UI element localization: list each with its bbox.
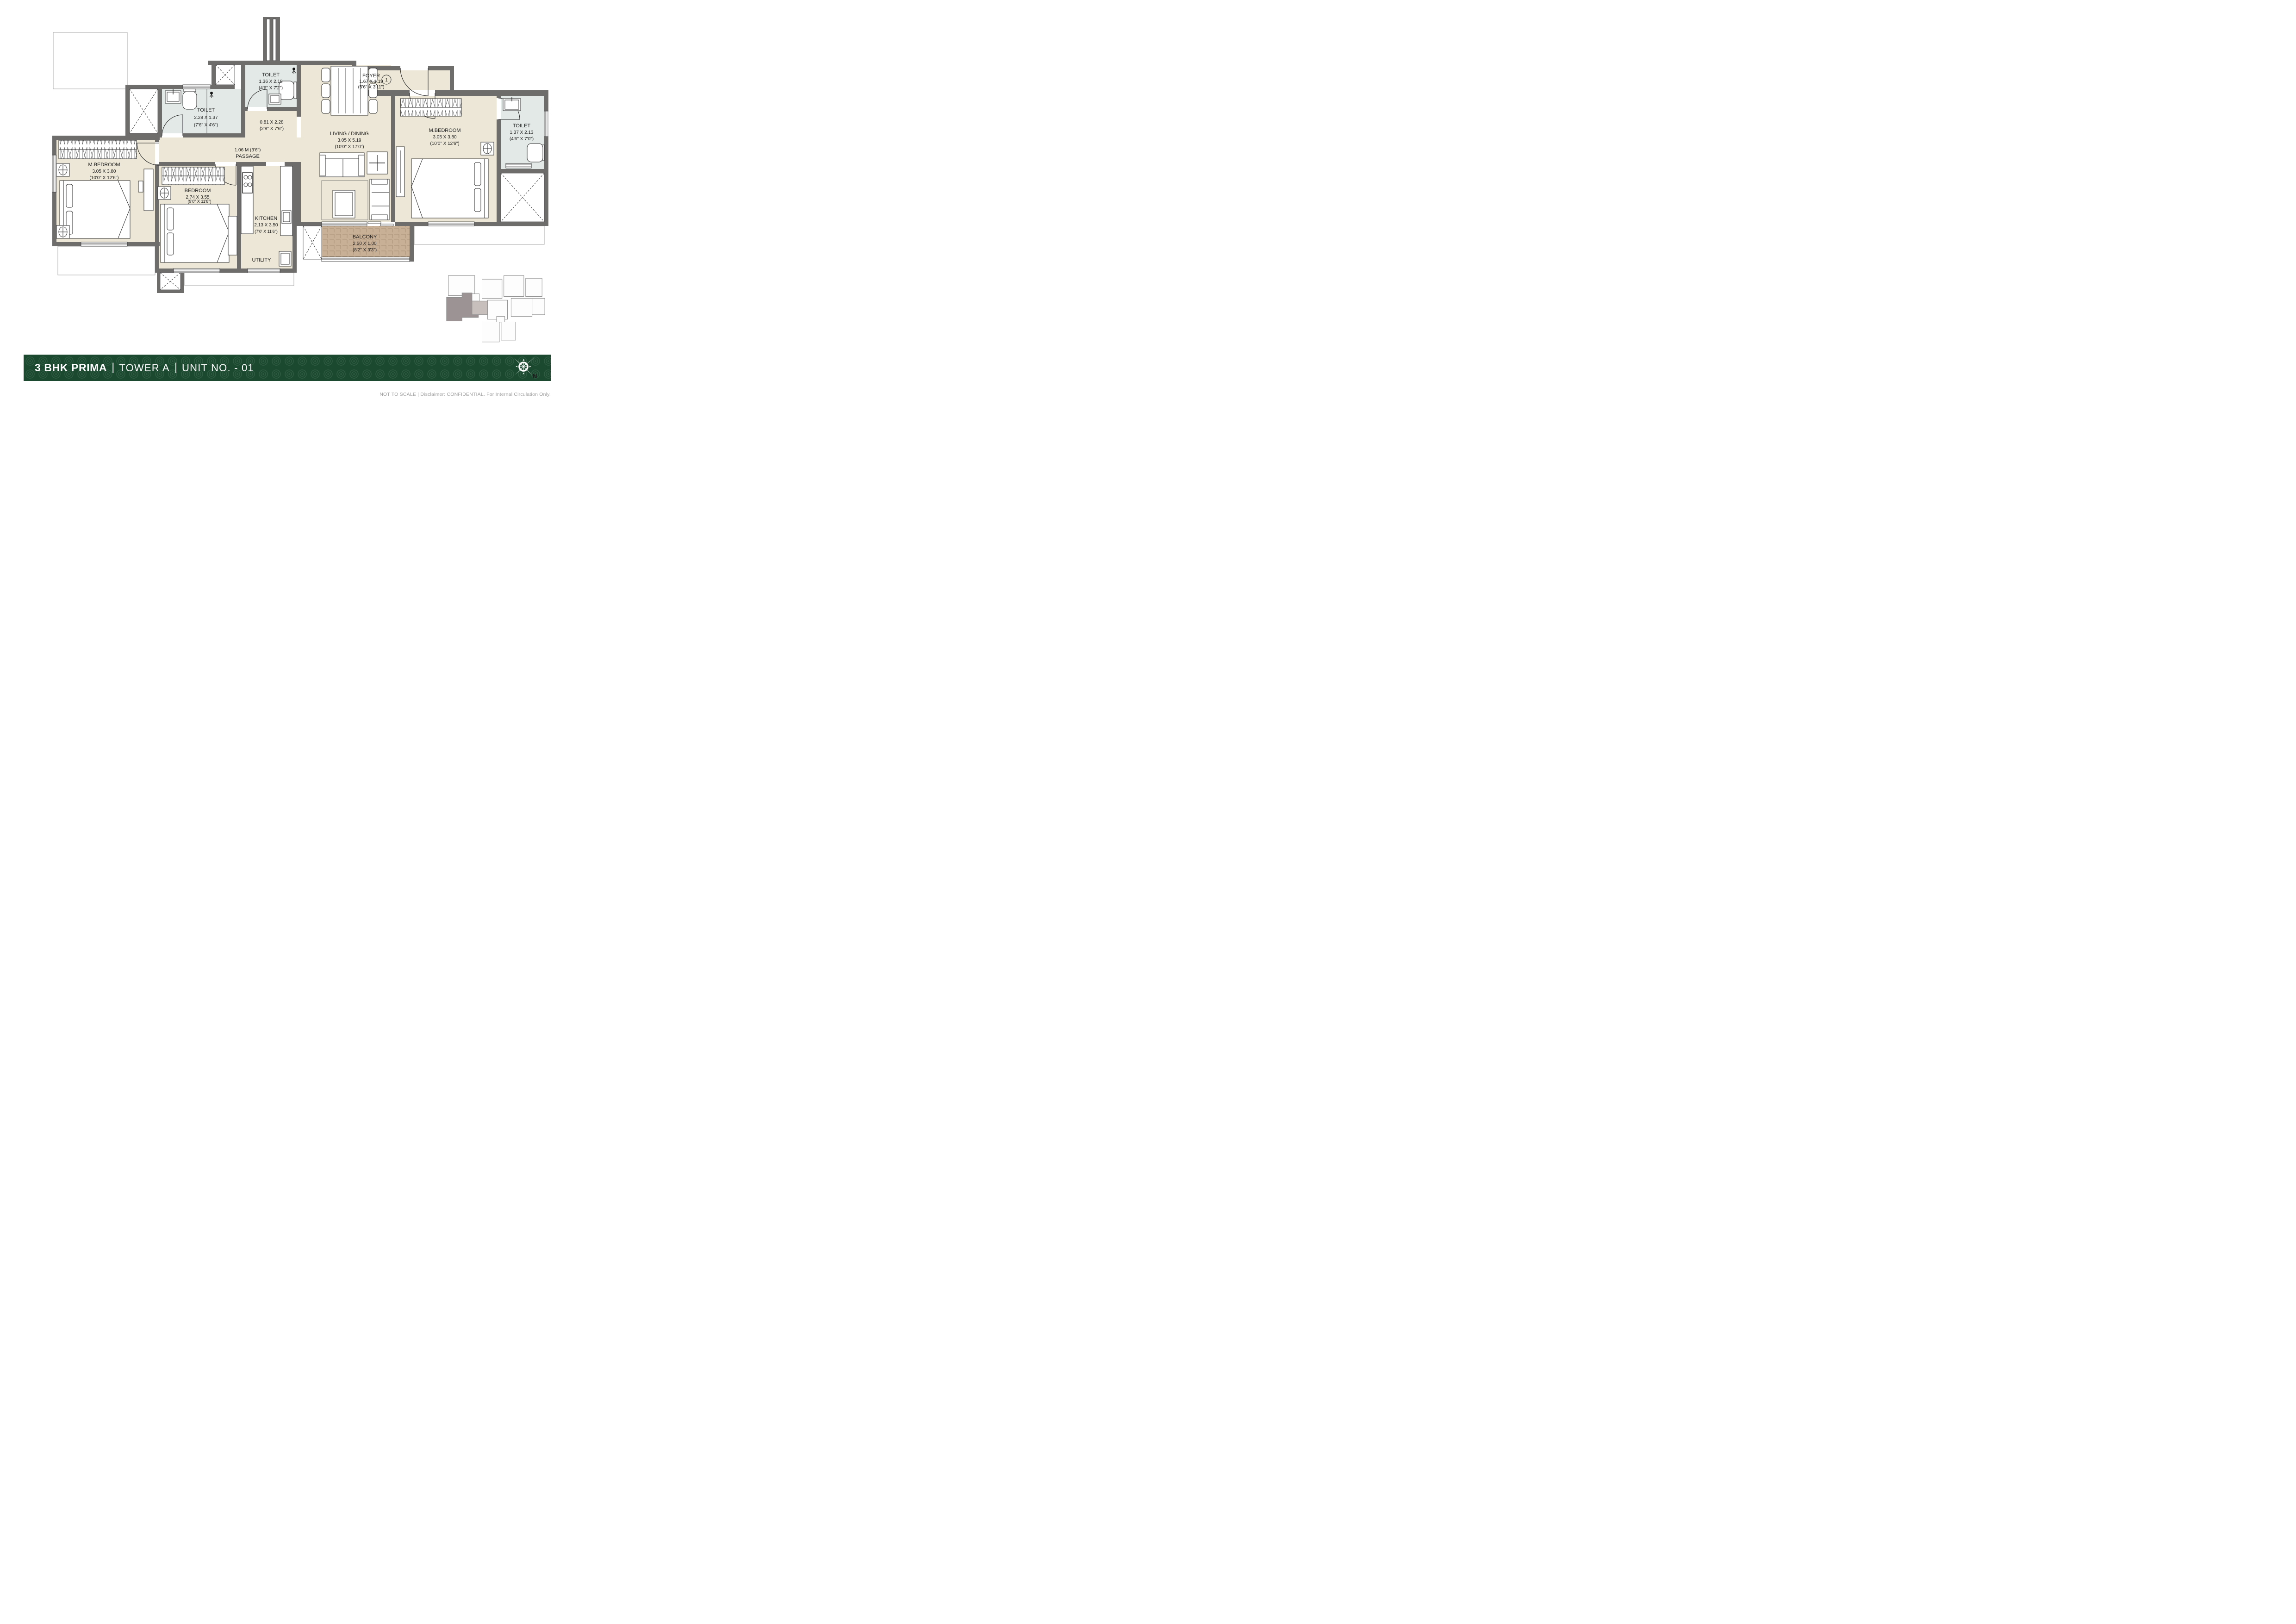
nightstand-lamp [56, 225, 69, 238]
room-label: BALCONY [353, 234, 377, 240]
room-dim-m: 2.50 X 1.00 [353, 241, 377, 246]
footer-bar: 3 BHK PRIMA | TOWER A | UNIT NO. - 01 N [24, 355, 551, 381]
sink-icon [165, 89, 181, 103]
door-number: 1 [385, 78, 388, 83]
room-toilet-right: TOILET 1.37 X 2.13 (4'6" X 7'0") [510, 123, 534, 142]
nightstand-lamp [56, 163, 69, 176]
key-plan [443, 271, 548, 346]
room-bedroom: BEDROOM 2.74 X 3.55 (9'0" X 11'8") [185, 188, 212, 204]
room-dim-m: 2.13 X 3.50 [254, 223, 278, 228]
room-dim-m: 3.05 X 5.19 [337, 138, 361, 143]
title-tower: TOWER A [119, 362, 169, 374]
bed-rbedroom [411, 159, 488, 218]
room-label: TOILET [197, 107, 215, 113]
room-balcony: BALCONY 2.50 X 1.00 (8'2" X 3'3") [353, 234, 377, 253]
floor-plan-svg: TOILET 1.36 X 2.18 (4'6" X 7'2") 0.81 X … [44, 16, 548, 294]
kitchen-sink-icon [282, 211, 291, 224]
title-unit: UNIT NO. - 01 [182, 362, 254, 374]
sofa-three-seater [370, 179, 389, 220]
title-separator: | [174, 361, 177, 374]
room-label: TOILET [513, 123, 531, 129]
room-dim-m: 3.05 X 3.80 [92, 169, 116, 174]
key-plan-highlighted-unit [447, 293, 487, 321]
title-separator: | [112, 361, 114, 374]
room-mbedroom-left: M.BEDROOM 3.05 X 3.80 (10'0" X 12'6") [88, 162, 120, 181]
sink-icon [503, 97, 521, 111]
room-label: M.BEDROOM [88, 162, 120, 168]
compass-icon: N [511, 357, 539, 379]
wc-icon [527, 144, 544, 162]
shaft-bottom-left [160, 273, 180, 290]
wardrobe-lbedroom [59, 140, 137, 159]
room-dim: 1.06 M (3'6") [235, 148, 261, 153]
balcony-railing [322, 257, 410, 262]
shaft-top [216, 65, 235, 85]
room-toilet-left: TOILET 2.28 X 1.37 (7'6" X 4'6") [194, 107, 218, 128]
disclaimer-text: NOT TO SCALE | Disclaimer: CONFIDENTIAL.… [380, 392, 551, 397]
window-lbedroom-south [81, 242, 127, 246]
window-rtoilet-east [544, 111, 548, 137]
coffee-table [333, 190, 355, 218]
room-passage: 1.06 M (3'6") PASSAGE [235, 148, 261, 159]
window-living-balcony [322, 222, 367, 226]
window-rbedroom-south [428, 222, 474, 226]
room-dim-ft: (4'6" X 7'0") [510, 137, 534, 142]
room-label: LIVING / DINING [330, 131, 369, 137]
floor-plan: TOILET 1.36 X 2.18 (4'6" X 7'2") 0.81 X … [44, 16, 548, 294]
room-dim-m: 3.05 X 3.80 [433, 135, 457, 140]
floor-passage [159, 137, 301, 162]
window-ltoilet-north [183, 85, 211, 89]
shaft-balcony-left [303, 226, 322, 259]
room-label: M.BEDROOM [429, 128, 460, 133]
room-label: UTILITY [252, 257, 272, 263]
room-dim-ft: (8'2" X 3'3") [353, 248, 377, 253]
room-dim-ft: (9'0" X 11'8") [187, 199, 211, 204]
room-label: BEDROOM [185, 188, 211, 194]
room-dim-ft: (7'0' X 11'6") [255, 229, 278, 234]
room-dim-m: 2.28 X 1.37 [194, 115, 218, 120]
wardrobe-rbedroom [400, 99, 461, 116]
room-dim-ft: (4'6" X 7'2") [259, 86, 283, 91]
room-dim-m: 1.36 X 2.18 [259, 79, 283, 84]
nightstand-lamp [481, 142, 494, 155]
sofa-two-seater [320, 153, 364, 177]
side-table-plant [367, 152, 387, 174]
dresser-bedroom [228, 216, 237, 255]
wardrobe-bedroom [162, 167, 224, 185]
balcony-slider-door [368, 222, 393, 226]
hob-icon [243, 173, 252, 193]
room-mbedroom-right: M.BEDROOM 3.05 X 3.80 (10'0" X 12'6") [429, 128, 460, 146]
title-product: 3 BHK PRIMA [35, 362, 107, 374]
plan-title: 3 BHK PRIMA | TOWER A | UNIT NO. - 01 [24, 355, 551, 381]
room-dim-ft: (10'0" X 12'6") [430, 141, 459, 146]
washing-machine-icon [279, 251, 291, 266]
room-dim-m: 1.37 X 2.13 [510, 130, 534, 135]
room-utility: UTILITY [252, 257, 272, 263]
room-dim-ft: (5'6" X 3'11") [358, 85, 385, 90]
room-dim-ft: (7'6" X 4'6") [194, 123, 218, 128]
shower-drain-strip [506, 163, 531, 168]
tv-console-rbedroom [396, 147, 404, 197]
floor-plan-page: TOILET 1.36 X 2.18 (4'6" X 7'2") 0.81 X … [0, 0, 574, 406]
nightstand-lamp [158, 187, 171, 200]
room-toilet-top: TOILET 1.36 X 2.18 (4'6" X 7'2") [259, 72, 283, 91]
key-plan-svg [443, 271, 548, 346]
window-lbedroom-west [52, 155, 56, 192]
room-dim-ft: (2'8" X 7'6") [260, 126, 284, 131]
sink-icon [269, 94, 281, 104]
shaft-left [130, 89, 158, 133]
shaft-right [501, 173, 544, 222]
room-label: TOILET [262, 72, 280, 78]
room-label: FOYER [362, 73, 380, 79]
bed-bedroom [161, 204, 229, 262]
room-dim-m: 0.81 X 2.28 [260, 120, 284, 125]
window-utility-south [248, 269, 280, 273]
kitchen-counter-right [280, 166, 292, 236]
room-label: KITCHEN [255, 216, 277, 221]
bed-lbedroom [60, 181, 130, 238]
room-kitchen: KITCHEN 2.13 X 3.50 (7'0' X 11'6") [254, 216, 278, 234]
room-dim-ft: (10'0" X 12'6") [89, 175, 118, 181]
compass-north-label: N [533, 373, 537, 379]
room-label: PASSAGE [236, 154, 260, 159]
room-dim-m: 1.67 X 1.19 [359, 79, 383, 84]
kitchen-counter-left [241, 166, 253, 234]
window-bedroom-south [174, 269, 220, 273]
room-dim-ft: (10'0" X 17'0") [335, 144, 364, 150]
